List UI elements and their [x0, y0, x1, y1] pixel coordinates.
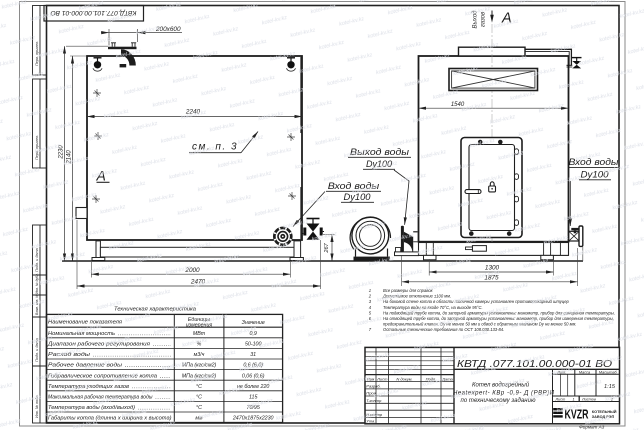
svg-text:Формат А3: Формат А3 [579, 424, 605, 429]
